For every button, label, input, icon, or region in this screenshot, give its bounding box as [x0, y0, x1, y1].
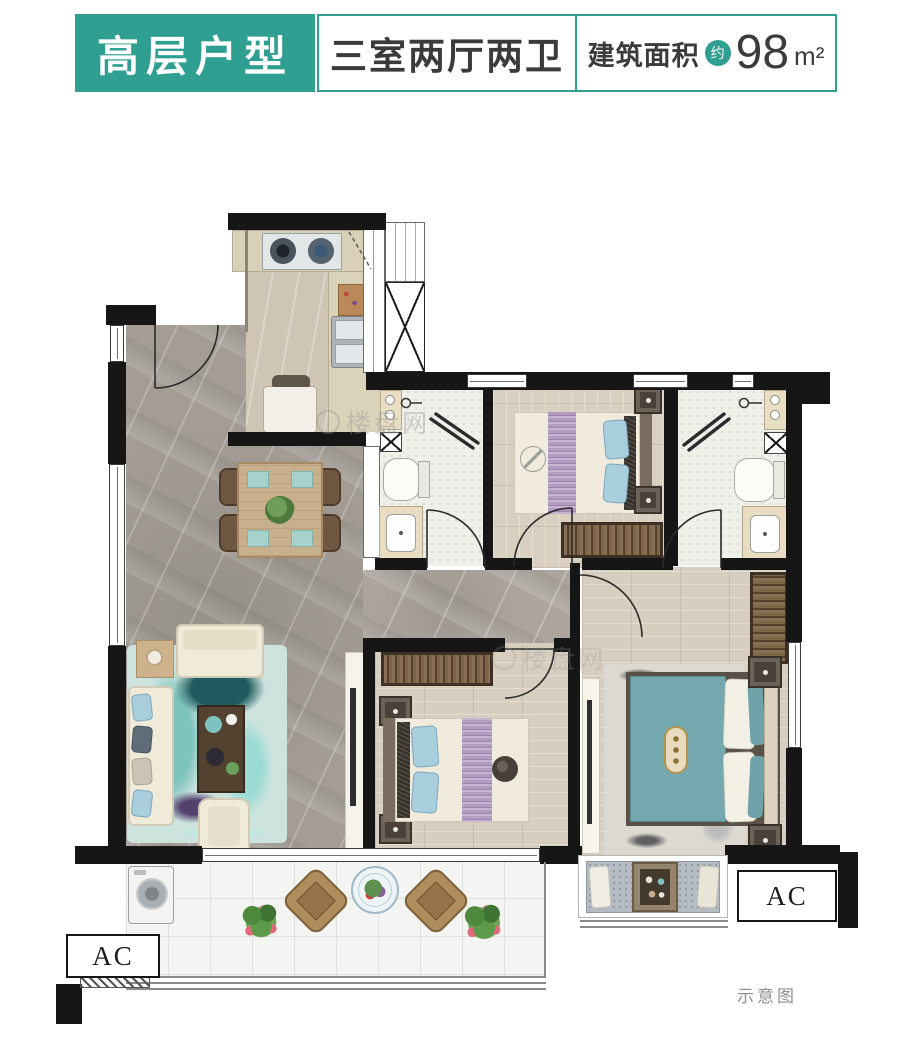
- unit-type-label: 高层户型: [97, 23, 293, 84]
- placemat-icon: [291, 471, 313, 488]
- watermark-logo-icon: [316, 410, 340, 434]
- washer-drum-icon: [136, 878, 168, 910]
- dining-side-wall: [363, 446, 380, 558]
- fridge-top-icon: [272, 375, 310, 387]
- kitchen-partition: [245, 230, 248, 332]
- coffee-table-bowl-icon: [206, 748, 224, 766]
- hallway-floor: [363, 570, 572, 643]
- window-icon: [732, 374, 754, 388]
- bed2-runner: [462, 718, 492, 822]
- sofa-pillow-icon: [131, 725, 153, 754]
- sofa-pillow-icon: [131, 757, 153, 785]
- coffee-table-plate-icon: [205, 716, 222, 733]
- ac-unit-left: AC: [66, 934, 160, 978]
- centerpiece-plant-icon: [265, 496, 295, 524]
- wall: [483, 386, 493, 566]
- cutting-board-icon: [338, 284, 364, 316]
- sofa-pillow-icon: [131, 789, 154, 818]
- sink-basin-icon: [335, 320, 365, 340]
- toilet-icon: [734, 458, 775, 502]
- wall: [838, 852, 858, 928]
- window-icon: [110, 325, 124, 362]
- watermark-logo-icon: [492, 646, 516, 670]
- nightstand-icon: [634, 386, 662, 414]
- ac-label: AC: [766, 881, 808, 912]
- cabinet-knob-icon: [770, 410, 780, 420]
- bed3-runner: [548, 412, 576, 514]
- stove-burner-icon: [270, 238, 296, 264]
- window-icon: [788, 642, 801, 748]
- watermark-text: 楼盘网: [522, 640, 606, 676]
- bed-runner-icon: [664, 726, 688, 774]
- wall: [366, 372, 830, 390]
- floorplan-page: 高层户型 三室两厅两卫 建筑面积 约 98 m²: [0, 0, 900, 1056]
- wall: [108, 362, 126, 464]
- kitchen-window-wall: [363, 220, 385, 373]
- bed3-wardrobe: [561, 522, 663, 558]
- armchair-cushion: [208, 806, 240, 846]
- room-layout-label: 三室两厅两卫: [330, 26, 564, 80]
- tv-icon: [350, 688, 356, 806]
- watermark-text: 楼盘网: [346, 404, 430, 440]
- window-icon: [633, 374, 688, 388]
- wall: [75, 846, 202, 864]
- railing-line: [126, 982, 546, 984]
- wall: [540, 846, 582, 864]
- washer-panel-icon: [134, 870, 146, 875]
- railing-line: [126, 988, 546, 990]
- bench-line: [580, 920, 728, 922]
- area-cell: 建筑面积 约 98 m²: [577, 16, 835, 90]
- schematic-note: 示意图: [737, 982, 797, 1007]
- bed3-pillow-icon: [602, 463, 629, 504]
- potted-plant-icon: [239, 900, 283, 944]
- wall: [363, 638, 375, 858]
- bed2-pillow-icon: [411, 771, 440, 814]
- placemat-icon: [291, 530, 313, 547]
- balcony-table-inner-icon: [358, 873, 392, 907]
- wall: [786, 748, 802, 860]
- sofa-main-cushion: [183, 630, 257, 650]
- fridge-icon: [263, 386, 317, 433]
- coffee-table-cup-icon: [226, 714, 237, 725]
- bed2-pillow-icon: [411, 725, 440, 768]
- area-value: 98: [736, 29, 789, 77]
- bed2-headboard: [383, 718, 395, 822]
- master-tv-icon: [587, 700, 592, 824]
- coffee-table: [197, 705, 245, 793]
- nightstand-icon: [634, 486, 662, 514]
- side-table-bowl-icon: [146, 649, 163, 666]
- placemat-icon: [247, 471, 269, 488]
- bench-pillow-icon: [697, 865, 720, 908]
- master-headboard: [764, 672, 778, 826]
- bed3-pillow-icon: [602, 419, 629, 460]
- wall: [106, 305, 156, 325]
- nightstand-icon: [748, 656, 782, 688]
- sink-basin-icon: [335, 344, 365, 364]
- master-accent-pillow-icon: [747, 683, 765, 746]
- stool-icon: [492, 756, 518, 782]
- unit-type-badge: 高层户型: [75, 14, 315, 92]
- area-label: 建筑面积: [588, 34, 700, 73]
- wall: [582, 558, 673, 570]
- coffee-table-plant-icon: [226, 762, 239, 775]
- wall: [228, 213, 386, 230]
- watermark: 楼盘网: [316, 404, 430, 440]
- wall: [108, 646, 126, 850]
- wall: [375, 558, 427, 570]
- window-icon: [467, 374, 527, 388]
- room-layout-cell: 三室两厅两卫: [319, 16, 577, 90]
- shaft-window: [385, 222, 425, 282]
- placemat-icon: [247, 530, 269, 547]
- bed2-throw: [397, 722, 410, 818]
- toilet-tank-icon: [418, 461, 430, 498]
- sink-drain-icon: [763, 532, 767, 536]
- stove-burner-icon: [308, 238, 334, 264]
- toilet-icon: [383, 458, 420, 501]
- balcony-slider-icon: [202, 848, 540, 862]
- bed3-leaf-motif-icon: [520, 446, 546, 472]
- railing-line: [126, 976, 546, 978]
- bench-table-top-icon: [640, 869, 670, 905]
- small-shaft-icon: [764, 432, 788, 454]
- bench-pillow-icon: [589, 865, 612, 908]
- wall: [786, 390, 802, 642]
- sink-drain-icon: [399, 531, 403, 535]
- cabinet-knob-icon: [770, 395, 780, 405]
- master-wardrobe: [750, 572, 788, 664]
- balcony-divider: [544, 862, 546, 976]
- wall: [725, 845, 840, 864]
- master-door-leaf: [570, 563, 580, 645]
- approx-circle-icon: 约: [705, 40, 731, 66]
- wall: [56, 984, 82, 1024]
- header-info-group: 三室两厅两卫 建筑面积 约 98 m²: [317, 14, 837, 92]
- duct-shaft-icon: [385, 282, 425, 372]
- watermark: 楼盘网: [492, 640, 606, 676]
- window-icon: [109, 464, 125, 646]
- wall: [664, 386, 678, 566]
- wall: [721, 558, 788, 570]
- wall: [363, 638, 505, 652]
- toilet-tank-icon: [773, 461, 785, 499]
- bench-line: [580, 926, 728, 928]
- bed2-wardrobe: [381, 652, 493, 686]
- area-unit: m²: [794, 35, 824, 72]
- sofa-pillow-icon: [131, 693, 154, 722]
- ac-label: AC: [92, 941, 134, 972]
- ac-unit-right: AC: [737, 870, 837, 922]
